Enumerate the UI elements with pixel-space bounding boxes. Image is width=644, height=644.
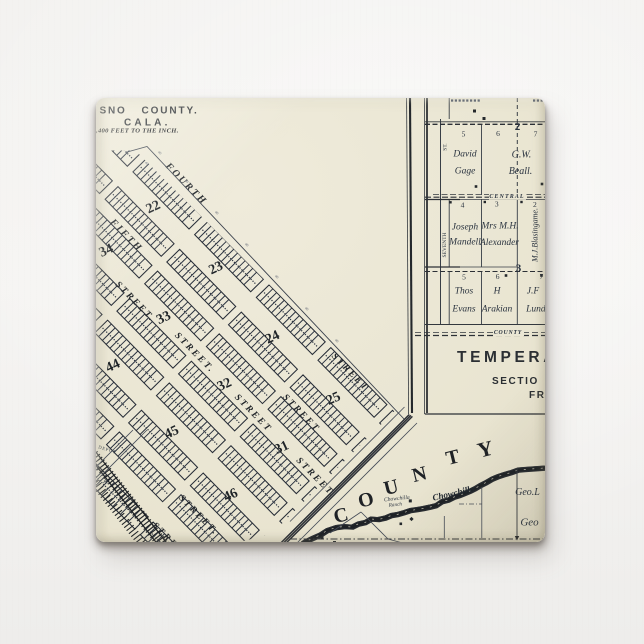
svg-text:COUNTY: COUNTY [494,330,522,336]
svg-text:COUNTY.: COUNTY. [142,106,199,117]
svg-text:Beall.: Beall. [509,166,533,177]
svg-text:Joseph: Joseph [452,223,479,233]
svg-text:Thos: Thos [455,287,474,297]
svg-text:G.W.: G.W. [512,150,532,161]
svg-text:Gage: Gage [455,167,476,177]
svg-text:Geo.L: Geo.L [515,487,540,498]
svg-text:7: 7 [534,130,538,139]
svg-text:SEVENTH: SEVENTH [442,232,448,257]
svg-text:6: 6 [496,272,500,281]
svg-text:6: 6 [496,129,500,138]
svg-text:Mrs M.H.: Mrs M.H. [480,222,518,232]
svg-text:5: 5 [462,130,466,139]
svg-text:7: 7 [540,272,544,281]
svg-text:H: H [493,287,502,297]
svg-text:FR: FR [529,390,545,401]
svg-text:3: 3 [516,263,522,275]
svg-text:,400 FEET TO THE INCH.: ,400 FEET TO THE INCH. [96,128,179,135]
svg-text:4: 4 [461,200,465,209]
svg-text:SNO: SNO [100,106,127,117]
svg-text:2: 2 [515,121,521,133]
svg-text:SECTIO: SECTIO [492,376,539,387]
svg-text:2: 2 [533,200,537,209]
svg-text:M.J.Blasingame.: M.J.Blasingame. [531,208,540,263]
svg-text:Mandell: Mandell [448,238,481,248]
svg-text:Evans: Evans [451,305,476,315]
svg-text:J.F: J.F [527,287,540,297]
svg-text:TEMPERA: TEMPERA [457,349,545,366]
svg-text:Lundsf: Lundsf [525,304,545,315]
svg-text:Alexander: Alexander [479,238,519,248]
svg-text:David: David [452,150,476,160]
svg-text:Geo: Geo [520,517,539,529]
svg-text:Arakian: Arakian [481,305,513,315]
svg-text:5: 5 [462,273,466,282]
svg-text:ST.: ST. [442,143,448,151]
svg-text:3: 3 [495,200,499,209]
